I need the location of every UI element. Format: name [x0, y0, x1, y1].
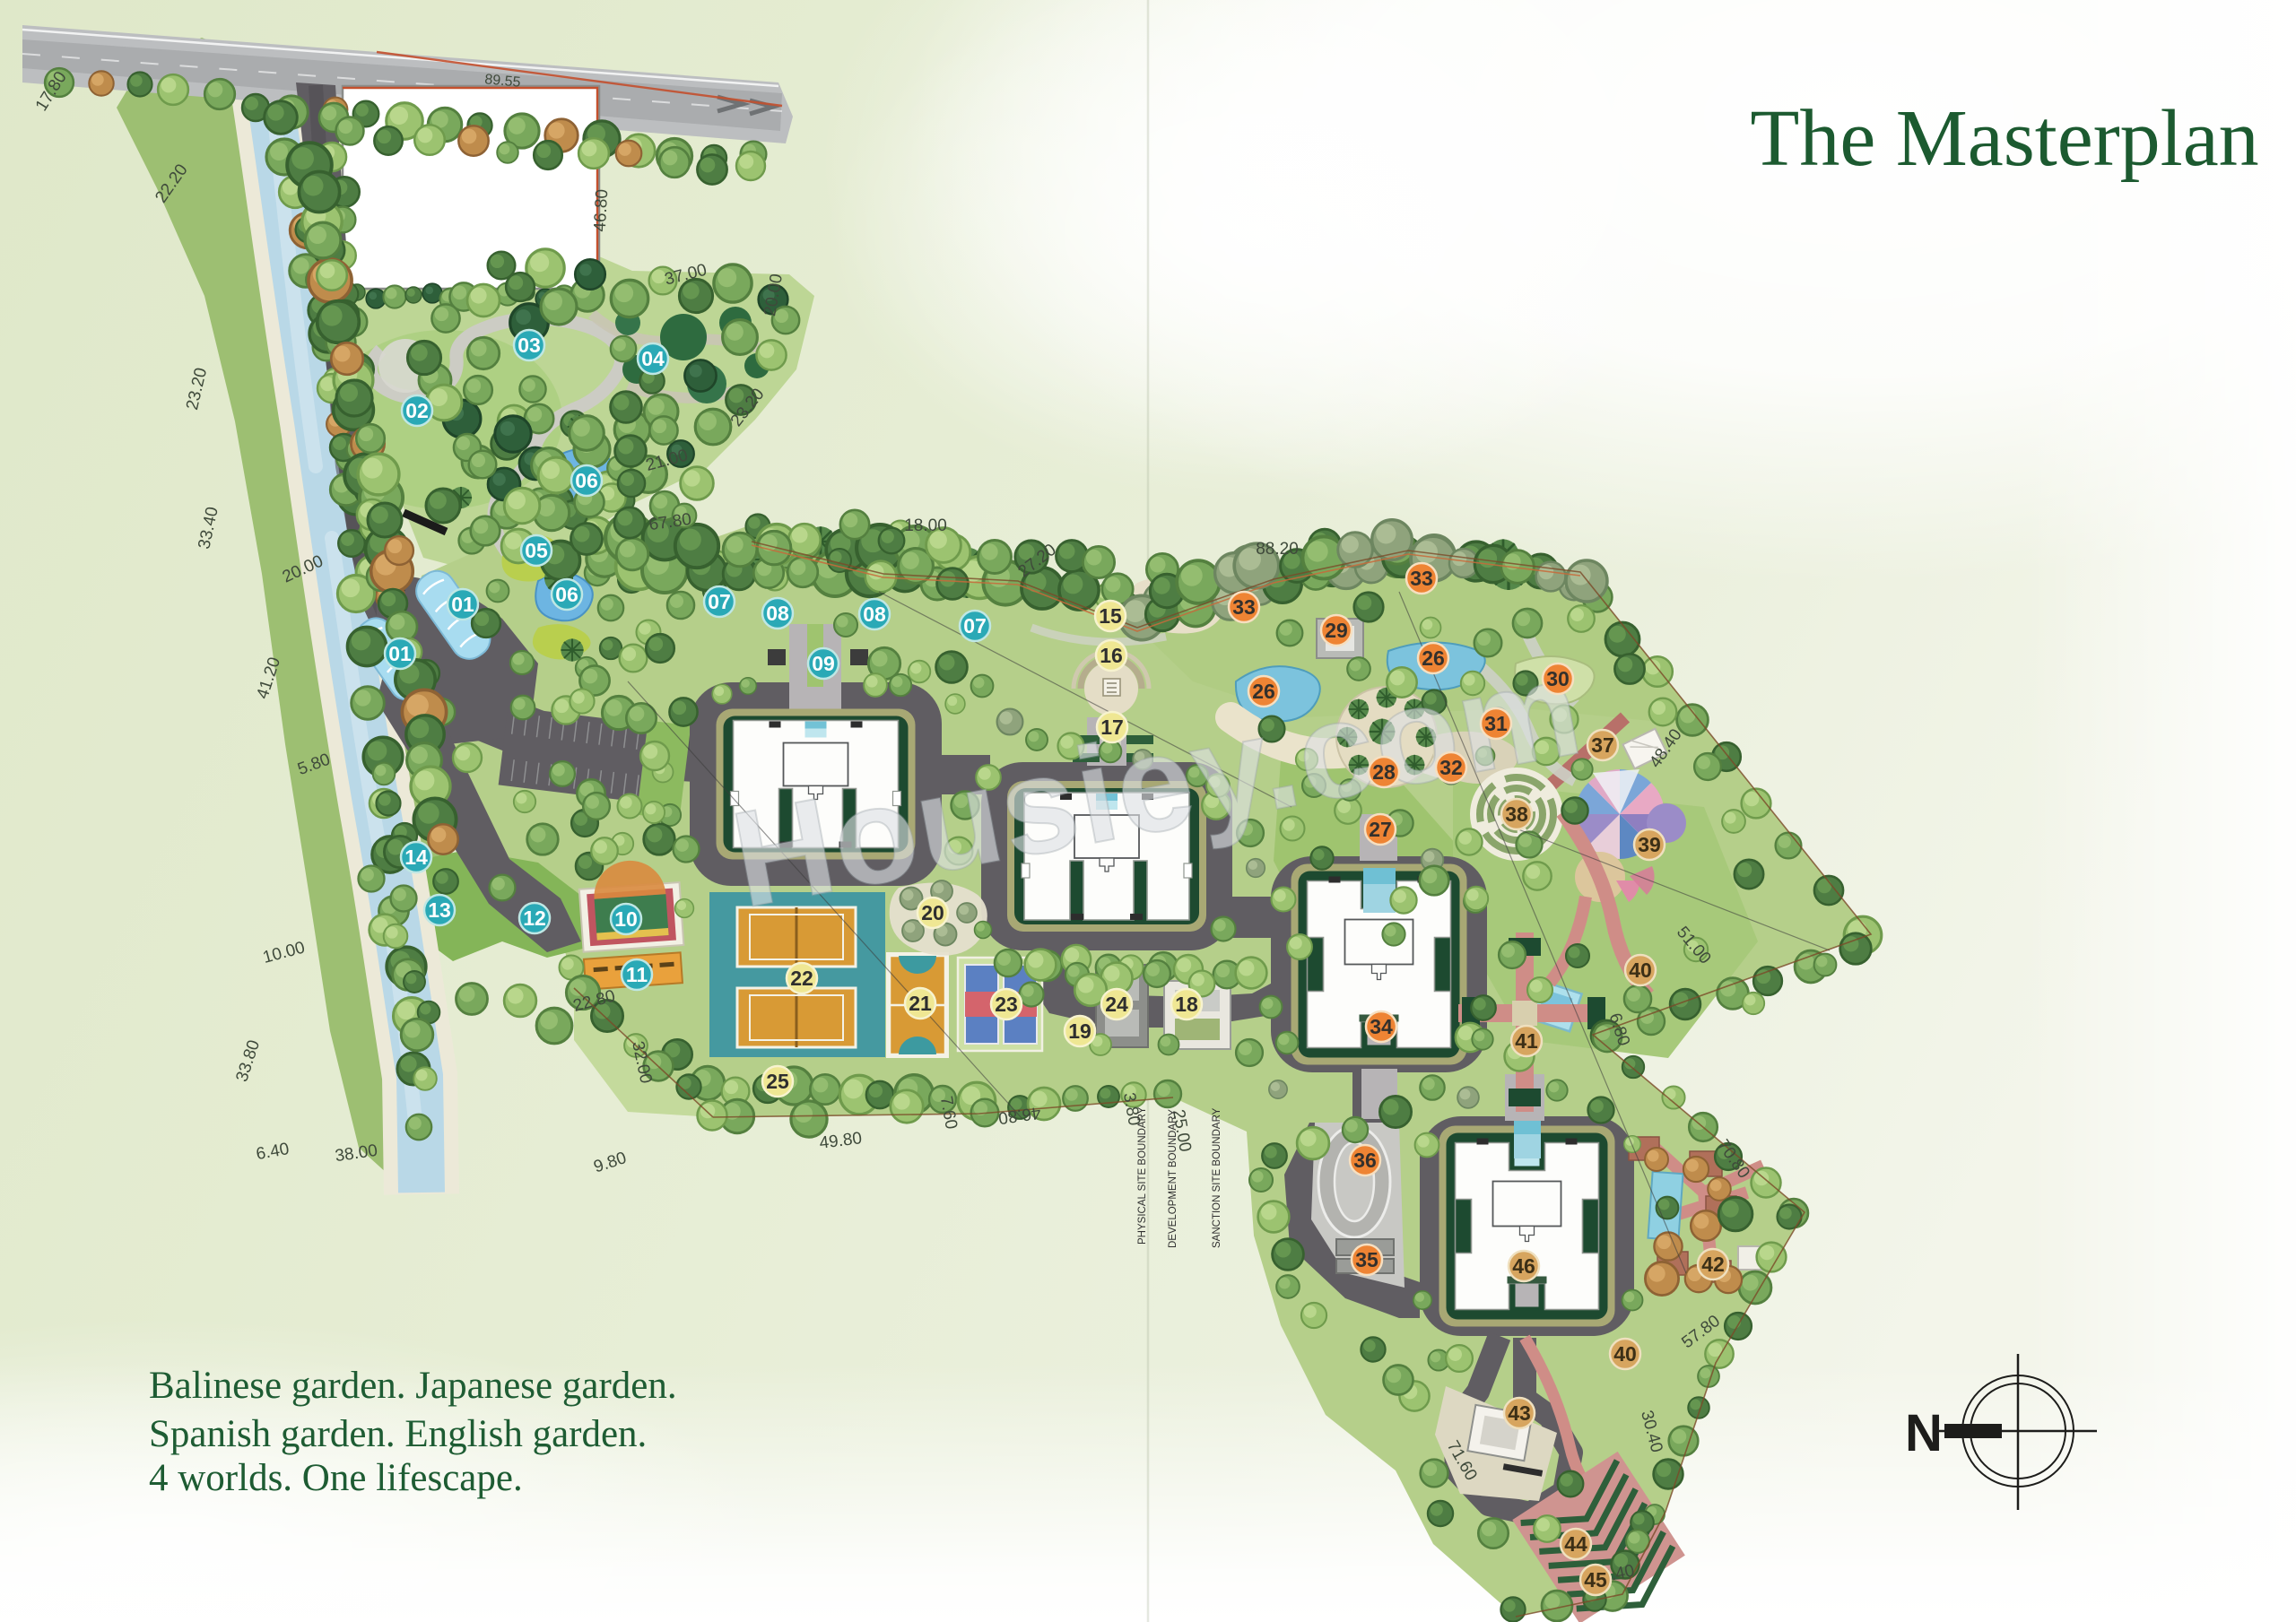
svg-text:44: 44	[1564, 1532, 1587, 1556]
svg-text:The Masterplan: The Masterplan	[1750, 94, 2258, 183]
svg-text:4 worlds. One lifescape.: 4 worlds. One lifescape.	[149, 1457, 523, 1499]
svg-text:36: 36	[1353, 1149, 1377, 1172]
svg-text:43: 43	[1508, 1401, 1531, 1425]
svg-text:01: 01	[451, 593, 474, 616]
svg-text:45: 45	[1584, 1568, 1607, 1592]
svg-text:23: 23	[995, 993, 1018, 1016]
svg-text:88.20: 88.20	[1256, 540, 1299, 559]
svg-text:38: 38	[1505, 802, 1528, 826]
svg-text:06: 06	[555, 583, 578, 606]
svg-text:15: 15	[1099, 604, 1122, 628]
svg-text:33: 33	[1232, 595, 1256, 619]
svg-text:06: 06	[575, 469, 598, 492]
svg-text:18.00: 18.00	[904, 516, 947, 535]
svg-text:13: 13	[428, 898, 451, 922]
svg-text:20: 20	[921, 901, 944, 924]
svg-text:SANCTION SITE BOUNDARY: SANCTION SITE BOUNDARY	[1212, 1107, 1222, 1248]
svg-text:37: 37	[1591, 733, 1614, 757]
svg-text:08: 08	[863, 603, 886, 626]
svg-text:46: 46	[1512, 1254, 1535, 1278]
svg-text:41: 41	[1515, 1029, 1538, 1053]
svg-text:33: 33	[1410, 567, 1433, 590]
svg-text:05: 05	[525, 539, 548, 562]
svg-text:07: 07	[963, 614, 987, 638]
svg-text:46.80: 46.80	[591, 188, 612, 232]
svg-text:18: 18	[1175, 993, 1198, 1016]
svg-text:04: 04	[641, 347, 665, 370]
svg-text:Spanish garden. English garden: Spanish garden. English garden.	[149, 1413, 647, 1455]
svg-text:24: 24	[1105, 993, 1128, 1016]
svg-text:29: 29	[1325, 619, 1348, 642]
svg-text:40: 40	[1613, 1342, 1637, 1366]
svg-text:21: 21	[909, 992, 932, 1015]
svg-text:16: 16	[1100, 644, 1123, 667]
svg-text:30: 30	[1546, 667, 1570, 690]
svg-text:28: 28	[1372, 760, 1396, 784]
svg-text:01: 01	[388, 642, 412, 665]
svg-text:22: 22	[790, 967, 813, 990]
svg-text:10: 10	[614, 907, 638, 931]
svg-text:89.55: 89.55	[484, 72, 521, 90]
svg-text:42: 42	[1701, 1253, 1725, 1276]
svg-text:34: 34	[1370, 1015, 1393, 1038]
svg-text:12: 12	[523, 906, 546, 930]
svg-text:17: 17	[1100, 716, 1124, 739]
svg-text:31: 31	[1484, 712, 1508, 735]
svg-text:40: 40	[1629, 958, 1652, 982]
svg-text:26: 26	[1422, 646, 1445, 670]
svg-text:PHYSICAL SITE BOUNDARY: PHYSICAL SITE BOUNDARY	[1137, 1106, 1148, 1245]
svg-text:Balinese garden. Japanese gard: Balinese garden. Japanese garden.	[149, 1365, 677, 1407]
svg-text:N: N	[1905, 1404, 1943, 1462]
svg-text:11: 11	[626, 963, 648, 986]
svg-text:02: 02	[405, 399, 429, 422]
svg-text:08: 08	[766, 602, 789, 625]
svg-text:32: 32	[1439, 756, 1463, 779]
svg-text:35: 35	[1355, 1248, 1378, 1271]
svg-text:03: 03	[517, 334, 541, 357]
svg-text:39: 39	[1638, 833, 1661, 856]
svg-text:25: 25	[766, 1070, 789, 1093]
svg-text:DEVELOPMENT BOUNDARY: DEVELOPMENT BOUNDARY	[1168, 1109, 1178, 1248]
svg-text:09: 09	[812, 652, 835, 675]
svg-text:07: 07	[708, 590, 731, 613]
svg-text:14: 14	[404, 846, 428, 869]
svg-text:27: 27	[1369, 818, 1392, 841]
svg-text:26: 26	[1252, 680, 1275, 703]
svg-text:19: 19	[1068, 1019, 1091, 1043]
